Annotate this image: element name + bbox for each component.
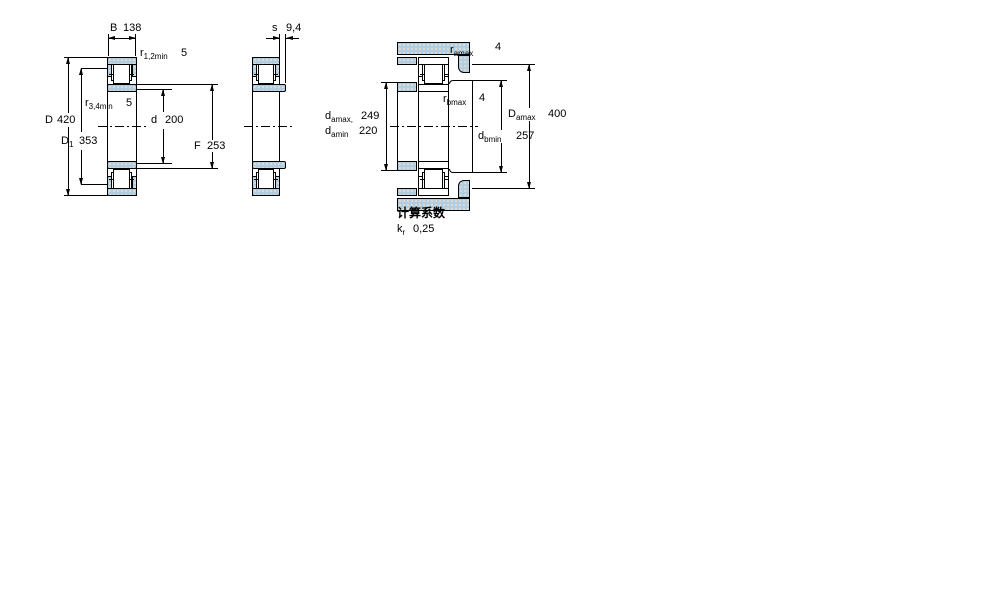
dim-D-line-upper — [68, 57, 69, 113]
v2-outer-ring-bottom — [252, 188, 280, 196]
dim-ramax-value: 4 — [495, 41, 501, 53]
v2-inner-ring-bottom — [252, 161, 286, 169]
dim-D1-label: D1 — [61, 135, 73, 148]
v1-flange-bottom-right — [132, 176, 137, 189]
dim-r34-value: 5 — [126, 97, 132, 109]
v1-flange-top-right — [132, 64, 137, 77]
dim-F-label: F — [194, 140, 201, 152]
v3-shaft-shoulder-surface-top — [453, 80, 472, 81]
v2-roller-axis-tick — [274, 74, 278, 75]
dim-d-ext-top — [136, 89, 172, 90]
dim-B-label: B — [110, 22, 117, 34]
dim-F-ext-bottom — [136, 168, 218, 169]
dim-r12-label: r1,2min — [140, 47, 168, 60]
v3-outer-ring-spacer-bottom — [397, 188, 417, 196]
dim-B-arrow-left — [108, 36, 115, 40]
v2-roller-bottom — [258, 169, 274, 189]
dim-D1-value: 353 — [78, 135, 98, 147]
dim-rbmax-label: rbmax — [443, 93, 466, 106]
dim-d-label: d — [151, 114, 157, 126]
calc-kr-value: 0,25 — [413, 223, 434, 235]
dim-rbmax-value: 4 — [479, 92, 485, 104]
v3-shaft-collar-bottom — [397, 161, 417, 171]
v1-roller-axis-tick — [130, 74, 134, 75]
dim-dbmin-value: 257 — [516, 130, 534, 142]
v3-roller-axis-tick — [445, 74, 449, 75]
v3-outer-ring-bottom — [418, 188, 449, 196]
v1-outer-ring-bottom — [107, 188, 137, 196]
v3-outer-ring-spacer-top — [397, 57, 417, 65]
dim-D-ext-bottom — [64, 195, 107, 196]
v3-inner-ring-top — [418, 84, 449, 92]
dim-F-arrow-up — [210, 84, 214, 91]
dim-Da-ext-bottom — [472, 188, 535, 189]
dim-Da-ext-top — [472, 64, 535, 65]
dim-D1-arrow-up — [79, 68, 83, 75]
dim-B-value: 138 — [123, 22, 141, 34]
dim-db-arrow-up — [499, 80, 503, 87]
dim-D1-ext-top — [81, 68, 107, 69]
dim-da-ext-top — [381, 82, 397, 83]
dim-Da-arrow-up — [527, 64, 531, 71]
v2-roller-axis-tick — [254, 74, 258, 75]
v2-roller-top — [258, 64, 274, 84]
dim-s-ext-left — [279, 34, 280, 57]
dim-D1-ext-bottom — [81, 184, 107, 185]
v1-roller-axis-tick — [109, 179, 113, 180]
dim-D-value: 420 — [56, 114, 76, 126]
v3-housing-shoulder-bottom — [458, 180, 470, 198]
dim-damax-label: damax, — [325, 110, 353, 123]
v1-roller-axis-tick — [109, 74, 113, 75]
dim-D-ext-top — [64, 57, 107, 58]
dim-F-line — [212, 84, 213, 169]
dim-d-arrow-up — [161, 89, 165, 96]
v3-shaft-fillet-top — [449, 80, 453, 84]
v3-roller-top — [424, 64, 443, 84]
v1-centerline — [98, 126, 146, 127]
v3-centerline — [390, 126, 478, 127]
dim-dbmin-label: dbmin — [477, 130, 502, 143]
dim-r34-label: r3,4min — [85, 97, 113, 110]
calc-kr-label: kr — [397, 223, 405, 236]
dim-d-value: 200 — [164, 114, 184, 126]
v3-roller-axis-tick — [420, 74, 424, 75]
v2-roller-axis-tick — [254, 179, 258, 180]
dim-da-line — [386, 82, 387, 171]
v3-shaft-fillet-bottom — [449, 169, 453, 173]
v1-inner-ring-top — [107, 84, 137, 92]
dim-Da-line — [529, 64, 530, 189]
v3-roller-axis-tick — [420, 179, 424, 180]
dim-da-arrow-up — [384, 82, 388, 89]
dim-damin-value: 220 — [359, 125, 377, 137]
v2-roller-axis-tick — [274, 179, 278, 180]
v1-roller-top — [113, 64, 130, 84]
dim-s-ext-right — [285, 34, 286, 83]
v3-roller-axis-tick — [445, 179, 449, 180]
dim-D1-line-upper — [81, 68, 82, 132]
dim-db-line — [501, 80, 502, 173]
dim-B-ext-left — [108, 34, 109, 56]
calc-factor-title: 计算系数 — [397, 207, 445, 219]
dim-db-ext-bottom — [472, 172, 507, 173]
v3-shaft-collar-top — [397, 82, 417, 92]
v1-roller-axis-tick — [130, 179, 134, 180]
dim-F-value: 253 — [206, 140, 226, 152]
dim-ramax-label: ramax — [450, 44, 473, 57]
dim-s-value: 9,4 — [286, 22, 301, 34]
dim-s-arrow-left — [286, 36, 293, 40]
v3-shaft-shoulder-surface-bottom — [453, 172, 472, 173]
dim-Damax-value: 400 — [548, 108, 566, 120]
v2-centerline — [244, 126, 294, 127]
dim-Damax-label: Damax — [507, 108, 537, 121]
v3-inner-ring-bottom — [418, 161, 449, 169]
dim-B-ext-right — [135, 34, 136, 56]
v3-roller-bottom — [424, 169, 443, 189]
dim-F-ext-top — [136, 84, 218, 85]
dim-db-ext-top — [472, 80, 507, 81]
dim-D-label: D — [45, 114, 53, 126]
dim-d-ext-bottom — [136, 163, 172, 164]
dim-D-arrow-up — [66, 57, 70, 64]
bearing-dimension-diagram: B 138 r1,2min 5 r3,4min 5 D 420 D1 353 d… — [0, 0, 1000, 600]
v2-inner-ring-top — [252, 84, 286, 92]
dim-r12-value: 5 — [181, 47, 187, 59]
dim-damin-label: damin — [325, 125, 348, 138]
dim-s-label: s — [272, 22, 278, 34]
dim-damax-value: 249 — [361, 110, 379, 122]
dim-da-ext-bottom — [381, 170, 397, 171]
v1-inner-ring-bottom — [107, 161, 137, 169]
v1-roller-bottom — [113, 169, 130, 189]
